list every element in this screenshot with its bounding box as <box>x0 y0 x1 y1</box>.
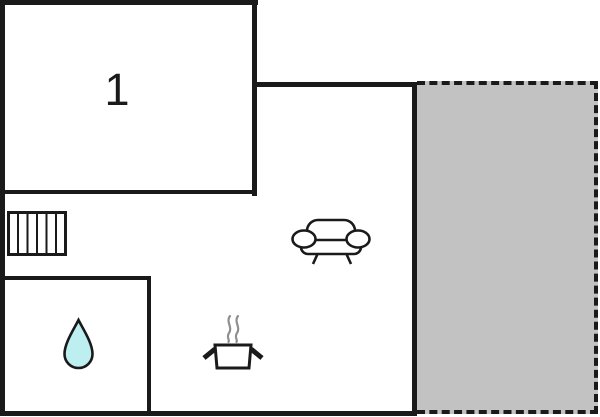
wall-outer-left <box>0 0 5 416</box>
wall-outer-bottom <box>0 411 417 416</box>
wall-living-top <box>252 82 417 87</box>
pot-body <box>215 345 251 368</box>
sofa-shapes <box>293 220 370 264</box>
pot-handle-left <box>204 349 215 358</box>
steam-lines <box>228 316 238 342</box>
wall-room1-top <box>0 0 258 5</box>
water-drop-shape <box>65 320 93 368</box>
wall-living-right <box>412 82 417 416</box>
room-1-label: 1 <box>92 66 142 114</box>
floorplan-canvas: 1 <box>0 0 600 417</box>
terrace-area <box>417 81 598 414</box>
wall-bath-right <box>147 276 151 416</box>
sofa-armrest-left <box>293 231 316 248</box>
steaming-pot-icon <box>201 308 265 372</box>
wall-bath-top <box>0 276 151 280</box>
wall-room1-right <box>252 0 257 196</box>
sofa-icon <box>291 216 371 266</box>
water-drop-icon <box>60 316 98 372</box>
sofa-armrest-right <box>347 231 370 248</box>
pot-handle-right <box>251 349 262 358</box>
pot-shapes <box>204 345 262 368</box>
wall-room1-bottom <box>0 190 257 194</box>
radiator-icon <box>7 211 67 256</box>
